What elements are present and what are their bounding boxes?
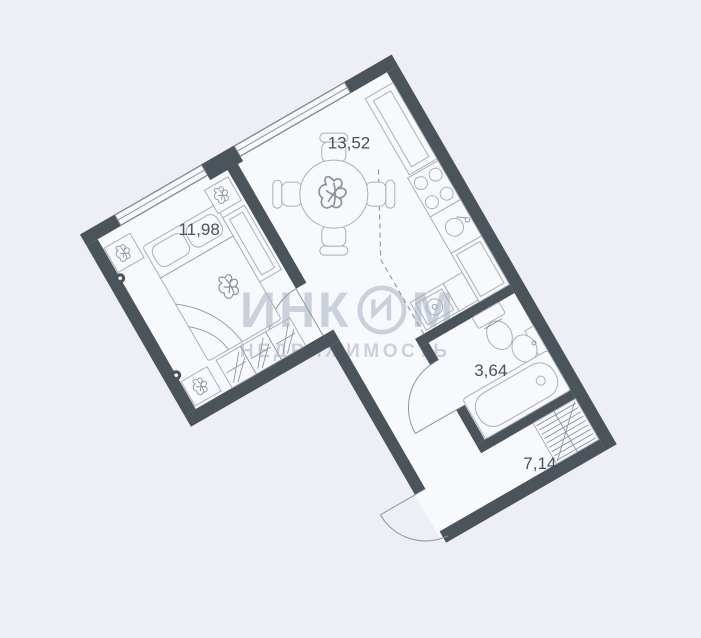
chair (320, 226, 348, 255)
chair (273, 180, 302, 208)
hallway-area-label: 7,14 (523, 454, 556, 473)
kitchen-area-label: 13,52 (328, 133, 371, 152)
bedroom-area-label: 11,98 (179, 220, 220, 239)
floorplan-page: 11,98 13,52 3,64 7,14 ИНК М НЕДВИЖИМОСТЬ (0, 0, 701, 638)
floorplan: 11,98 13,52 3,64 7,14 (80, 44, 644, 638)
bathroom-area-label: 3,64 (474, 361, 507, 380)
chair (366, 180, 395, 208)
